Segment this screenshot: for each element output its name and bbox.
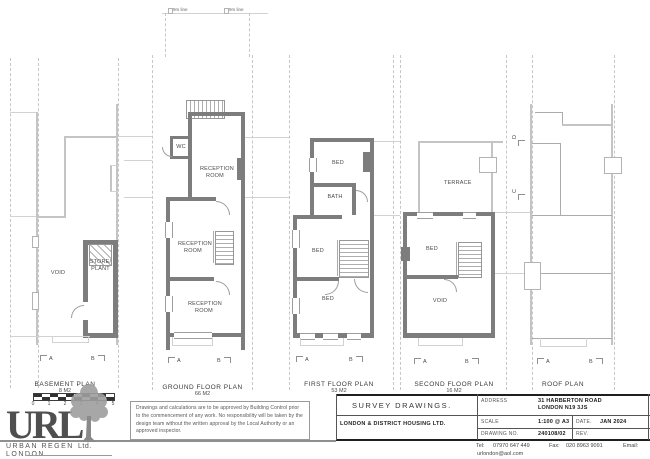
section-tick: [537, 358, 544, 364]
chimney: [524, 262, 541, 290]
date-label: DATE.: [576, 419, 592, 425]
fax-label: Fax:: [549, 443, 560, 449]
section-marker: A: [546, 359, 550, 365]
email-label: Email:: [623, 443, 638, 449]
section-tick: [518, 194, 525, 200]
roof-ridge: [560, 143, 561, 216]
roof-edge: [530, 104, 532, 345]
section-marker: C: [512, 189, 518, 193]
outline: [540, 346, 587, 347]
date-value: JAN 2024: [600, 419, 626, 425]
titleblock-rule: [336, 439, 650, 441]
titleblock-rule: [336, 394, 337, 440]
titleblock-rule: [572, 415, 573, 440]
titleblock-rule: [477, 394, 478, 440]
plan-title: ROOF PLAN: [508, 381, 618, 389]
roof-line: [562, 124, 612, 126]
disclaimer-box: Drawings and calculations are to be appr…: [130, 401, 310, 440]
roof-line: [532, 215, 612, 216]
drawing-sheet: 9m line 9m line: [0, 0, 650, 459]
titleblock-rule: [477, 428, 650, 429]
tree-logo-icon: [64, 380, 114, 444]
drawing-no-label: DRAWING NO.: [481, 431, 519, 437]
tel-label: Tel:: [476, 443, 485, 449]
section-tick: [518, 140, 525, 146]
drawing-no-value: 240108/02: [538, 431, 566, 437]
tel-value: 07970 647 449: [493, 443, 530, 449]
logo-suffix: Ltd.: [78, 443, 92, 450]
roof-line: [532, 338, 612, 339]
fax-value: 020 8963 9091: [566, 443, 603, 449]
section-marker: B: [589, 359, 593, 365]
drawing-title: SURVEY DRAWINGS.: [352, 401, 452, 410]
titleblock-rule: [336, 394, 650, 396]
titleblock-rule: [336, 415, 650, 416]
section-tick: [596, 358, 603, 364]
roof-line: [532, 143, 560, 144]
scale-label: SCALE: [481, 419, 499, 425]
section-marker: D: [512, 135, 518, 139]
roof-edge: [611, 104, 613, 345]
rev-label: REV.: [576, 431, 588, 437]
email-value: urlondon@aol.com: [477, 451, 523, 457]
address-label: ADDRESS: [481, 398, 507, 404]
address-value-line1: 31 HARBERTON ROAD: [538, 398, 602, 404]
client-name: LONDON & DISTRICT HOUSING LTD.: [340, 421, 446, 427]
chimney: [604, 157, 622, 174]
divider: [28, 455, 112, 456]
titleblock-rule: [648, 394, 649, 440]
roof-line: [535, 112, 563, 113]
scale-value: 1:100 @ A3: [538, 419, 569, 425]
roof-line: [532, 273, 612, 274]
logo-line1: URBAN REGEN: [6, 443, 74, 450]
address-value-line2: LONDON N19 3JS: [538, 405, 588, 411]
